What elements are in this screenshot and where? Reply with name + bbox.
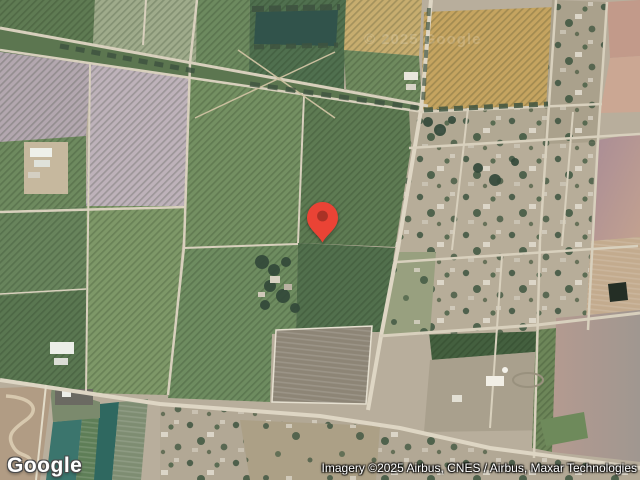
attribution-text: Imagery ©2025 Airbus, CNES / Airbus, Max…: [322, 461, 637, 475]
google-logo[interactable]: Google: [7, 454, 82, 478]
imagery-watermark: © 2025 Google: [364, 31, 481, 48]
small-pond: [608, 282, 628, 302]
satellite-map-canvas[interactable]: © 2025 Google Google Imagery ©2025 Airbu…: [0, 0, 640, 480]
satellite-imagery: © 2025 Google: [0, 0, 640, 480]
pin-hole: [317, 211, 328, 222]
reservoir-pond: [254, 10, 338, 46]
